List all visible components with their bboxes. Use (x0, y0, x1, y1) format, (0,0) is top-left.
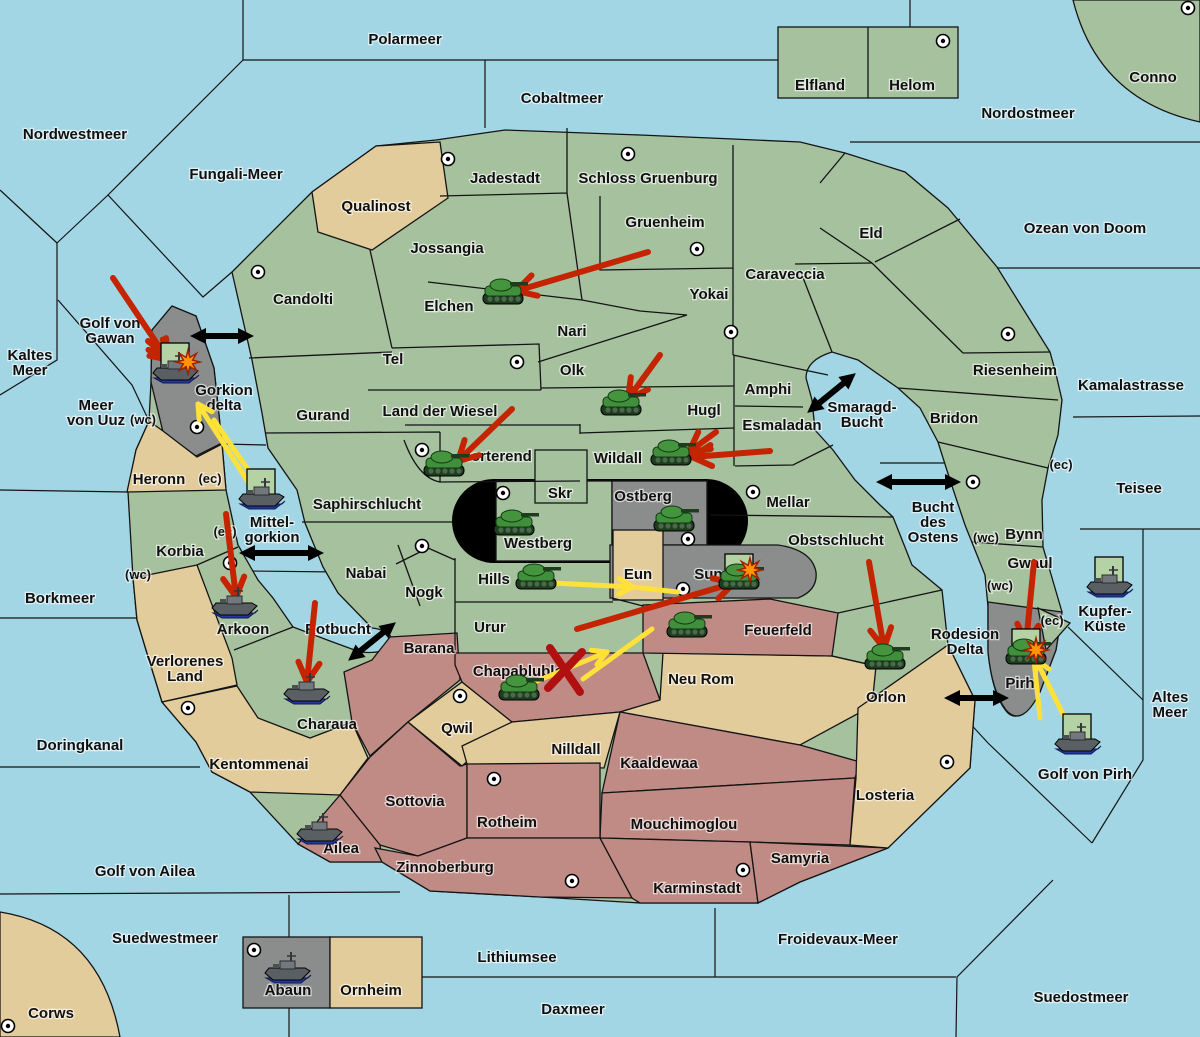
label-ostberg: Ostberg (614, 488, 672, 505)
supply-center-icon (691, 243, 704, 256)
label-pirh: Pirh (1005, 675, 1034, 692)
label-nabai: Nabai (346, 565, 387, 582)
label-polarmeer: Polarmeer (368, 31, 442, 48)
label-helom: Helom (889, 77, 935, 94)
label-riesenheim: Riesenheim (973, 362, 1057, 379)
label-losteria: Losteria (856, 787, 915, 804)
label-saphirschlucht: Saphirschlucht (313, 496, 421, 513)
label-sottovia: Sottovia (385, 793, 445, 810)
label-gruenheim: Gruenheim (625, 214, 704, 231)
supply-center-icon (511, 356, 524, 369)
label-qwil: Qwil (441, 720, 473, 737)
label-karminstadt: Karminstadt (653, 880, 741, 897)
explosion-icon (738, 558, 762, 582)
coast-marker: (ec) (1040, 613, 1063, 628)
supply-center-icon (941, 756, 954, 769)
label-esmaladan: Esmaladan (742, 417, 821, 434)
label-candolti: Candolti (273, 291, 333, 308)
label-elfland: Elfland (795, 77, 845, 94)
label-arkoon: Arkoon (217, 621, 270, 638)
label-golf-von-gawan: Golf vonGawan (80, 315, 141, 347)
label-abaun: Abaun (265, 982, 312, 999)
supply-center-icon (252, 266, 265, 279)
label-nilldall: Nilldall (551, 741, 600, 758)
label-charaua: Charaua (297, 716, 358, 733)
label-daxmeer: Daxmeer (541, 1001, 605, 1018)
label-rotheim: Rotheim (477, 814, 537, 831)
label-hugl: Hugl (687, 402, 720, 419)
coast-marker: (wc) (973, 530, 999, 545)
label-nordostmeer: Nordostmeer (981, 105, 1075, 122)
label-golf-von-ailea: Golf von Ailea (95, 863, 196, 880)
supply-center-icon (1182, 2, 1195, 15)
label-wildall: Wildall (594, 450, 642, 467)
label-feuerfeld: Feuerfeld (744, 622, 812, 639)
supply-center-icon (682, 533, 695, 546)
game-map: PolarmeerCobaltmeerNordostmeerNordwestme… (0, 0, 1200, 1037)
label-neu-rom: Neu Rom (668, 671, 734, 688)
label-altes-meer: AltesMeer (1152, 689, 1189, 721)
label-lithiumsee: Lithiumsee (477, 949, 556, 966)
map-canvas: PolarmeerCobaltmeerNordostmeerNordwestme… (0, 0, 1200, 1037)
coast-marker: (ec) (198, 471, 221, 486)
supply-center-icon (737, 864, 750, 877)
label-mellar: Mellar (766, 494, 810, 511)
label-kupfer-kueste: Kupfer-Küste (1078, 603, 1131, 635)
supply-center-icon (442, 153, 455, 166)
label-obstschlucht: Obstschlucht (788, 532, 884, 549)
coast-marker: (wc) (125, 567, 151, 582)
supply-center-icon (937, 35, 950, 48)
label-land-der-wiesel: Land der Wiesel (383, 403, 498, 420)
supply-center-icon (488, 773, 501, 786)
label-doringkanal: Doringkanal (37, 737, 124, 754)
label-westberg: Westberg (504, 535, 572, 552)
supply-center-icon (725, 326, 738, 339)
label-mittelgorkion: Mittel-gorkion (245, 514, 300, 546)
supply-center-icon (248, 944, 261, 957)
supply-center-icon (497, 487, 510, 500)
label-schloss-gruenburg: Schloss Gruenburg (578, 170, 717, 187)
supply-center-icon (416, 540, 429, 553)
label-nogk: Nogk (405, 584, 443, 601)
label-hills: Hills (478, 571, 510, 588)
label-urur: Urur (474, 619, 506, 636)
label-kentommenai: Kentommenai (209, 756, 308, 773)
label-heronn: Heronn (133, 471, 186, 488)
label-nari: Nari (557, 323, 586, 340)
label-kamalastrasse: Kamalastrasse (1078, 377, 1184, 394)
label-eun: Eun (624, 566, 652, 583)
coast-marker: (wc) (130, 412, 156, 427)
label-tel: Tel (383, 351, 404, 368)
supply-center-icon (416, 444, 429, 457)
label-cobaltmeer: Cobaltmeer (521, 90, 604, 107)
label-kaaldewaa: Kaaldewaa (620, 755, 698, 772)
supply-center-icon (967, 476, 980, 489)
label-zinnoberburg: Zinnoberburg (396, 859, 494, 876)
label-bynn: Bynn (1005, 526, 1043, 543)
supply-center-icon (1002, 328, 1015, 341)
label-teisee: Teisee (1116, 480, 1162, 497)
label-borkmeer: Borkmeer (25, 590, 95, 607)
label-skr: Skr (548, 485, 572, 502)
explosion-icon (1024, 638, 1048, 662)
label-gurand: Gurand (296, 407, 349, 424)
supply-center-icon (747, 486, 760, 499)
supply-center-icon (454, 690, 467, 703)
label-ozean-von-doom: Ozean von Doom (1024, 220, 1147, 237)
label-conno: Conno (1129, 69, 1176, 86)
label-suedwestmeer: Suedwestmeer (112, 930, 218, 947)
label-ornheim: Ornheim (340, 982, 402, 999)
label-fungali-meer: Fungali-Meer (189, 166, 283, 183)
label-gwaul: Gwaul (1007, 555, 1052, 572)
label-mouchimoglou: Mouchimoglou (631, 816, 738, 833)
label-bridon: Bridon (930, 410, 978, 427)
coast-marker: (ec) (1049, 457, 1072, 472)
label-yokai: Yokai (690, 286, 729, 303)
supply-center-icon (182, 702, 195, 715)
label-eld: Eld (859, 225, 882, 242)
supply-center-icon (566, 875, 579, 888)
label-corws: Corws (28, 1005, 74, 1022)
label-golf-von-pirh: Golf von Pirh (1038, 766, 1132, 783)
label-qualinost: Qualinost (341, 198, 410, 215)
supply-center-icon (622, 148, 635, 161)
coast-marker: (wc) (987, 578, 1013, 593)
label-froidevaux-meer: Froidevaux-Meer (778, 931, 898, 948)
label-elchen: Elchen (424, 298, 473, 315)
label-korbia: Korbia (156, 543, 204, 560)
label-suedostmeer: Suedostmeer (1033, 989, 1128, 1006)
label-amphi: Amphi (745, 381, 792, 398)
supply-center-icon (2, 1020, 15, 1033)
label-olk: Olk (560, 362, 585, 379)
label-orlon: Orlon (866, 689, 906, 706)
label-barana: Barana (404, 640, 456, 657)
supply-center-icon (191, 421, 204, 434)
explosion-icon (176, 350, 200, 374)
label-jadestadt: Jadestadt (470, 170, 540, 187)
label-nordwestmeer: Nordwestmeer (23, 126, 127, 143)
label-jossangia: Jossangia (410, 240, 484, 257)
label-caraveccia: Caraveccia (745, 266, 825, 283)
label-kaltes-meer: KaltesMeer (7, 347, 52, 379)
label-samyria: Samyria (771, 850, 830, 867)
